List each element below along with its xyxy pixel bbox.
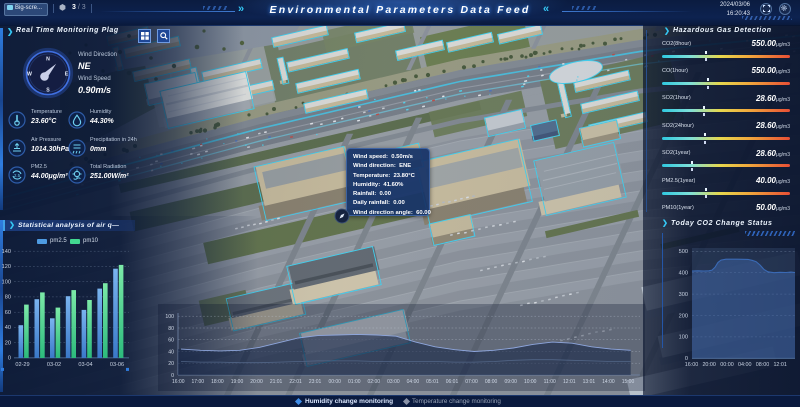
svg-text:18:00: 18:00 [211,379,224,385]
svg-text:11:00: 11:00 [544,379,556,385]
svg-text:03:00: 03:00 [387,379,400,385]
svg-text:01:00: 01:00 [348,379,361,385]
svg-text:05:01: 05:01 [426,379,439,385]
svg-text:120: 120 [2,264,11,270]
svg-text:300: 300 [679,292,688,298]
svg-text:08:00: 08:00 [756,362,770,368]
svg-text:03-04: 03-04 [78,362,92,368]
svg-text:02-29: 02-29 [15,362,29,368]
svg-text:03-06: 03-06 [110,362,124,368]
svg-text:20: 20 [168,361,174,367]
svg-text:S: S [46,88,50,94]
svg-text:0: 0 [8,356,11,362]
svg-text:06:01: 06:01 [446,379,459,385]
svg-text:20:00: 20:00 [702,362,716,368]
svg-text:23:01: 23:01 [309,379,322,385]
svg-text:19:00: 19:00 [231,379,244,385]
svg-text:80: 80 [168,326,174,332]
svg-text:12:01: 12:01 [773,362,787,368]
svg-text:140: 140 [2,249,11,255]
svg-text:100: 100 [2,280,11,286]
svg-text:200: 200 [679,313,688,319]
svg-text:0: 0 [171,373,174,379]
svg-text:40: 40 [168,349,174,355]
svg-text:04:00: 04:00 [407,379,420,385]
svg-text:100: 100 [165,314,174,320]
svg-text:00:00: 00:00 [720,362,734,368]
svg-text:12:01: 12:01 [563,379,576,385]
svg-text:08:00: 08:00 [485,379,498,385]
svg-text:02:00: 02:00 [368,379,381,385]
svg-text:14:00: 14:00 [602,379,615,385]
svg-text:00:00: 00:00 [328,379,341,385]
svg-text:16:00: 16:00 [172,379,185,385]
svg-text:20: 20 [5,341,11,347]
svg-text:03-02: 03-02 [47,362,61,368]
svg-text:E: E [65,72,69,78]
svg-text:400: 400 [679,271,688,277]
svg-text:60: 60 [5,310,11,316]
svg-text:10:00: 10:00 [524,379,537,385]
svg-text:16:00: 16:00 [685,362,699,368]
svg-text:500: 500 [679,249,688,255]
svg-text:17:00: 17:00 [192,379,205,385]
svg-text:80: 80 [5,295,11,301]
svg-text:13:01: 13:01 [583,379,596,385]
svg-text:15:00: 15:00 [622,379,635,385]
svg-text:100: 100 [679,335,688,341]
svg-text:22:01: 22:01 [289,379,302,385]
svg-text:N: N [46,57,50,63]
svg-text:2.5: 2.5 [14,173,21,178]
svg-text:40: 40 [5,325,11,331]
svg-text:21:01: 21:01 [270,379,283,385]
svg-text:W: W [27,72,32,78]
svg-text:20:00: 20:00 [250,379,263,385]
svg-text:04:00: 04:00 [738,362,752,368]
svg-text:09:00: 09:00 [504,379,517,385]
svg-text:60: 60 [168,338,174,344]
svg-text:07:00: 07:00 [465,379,478,385]
